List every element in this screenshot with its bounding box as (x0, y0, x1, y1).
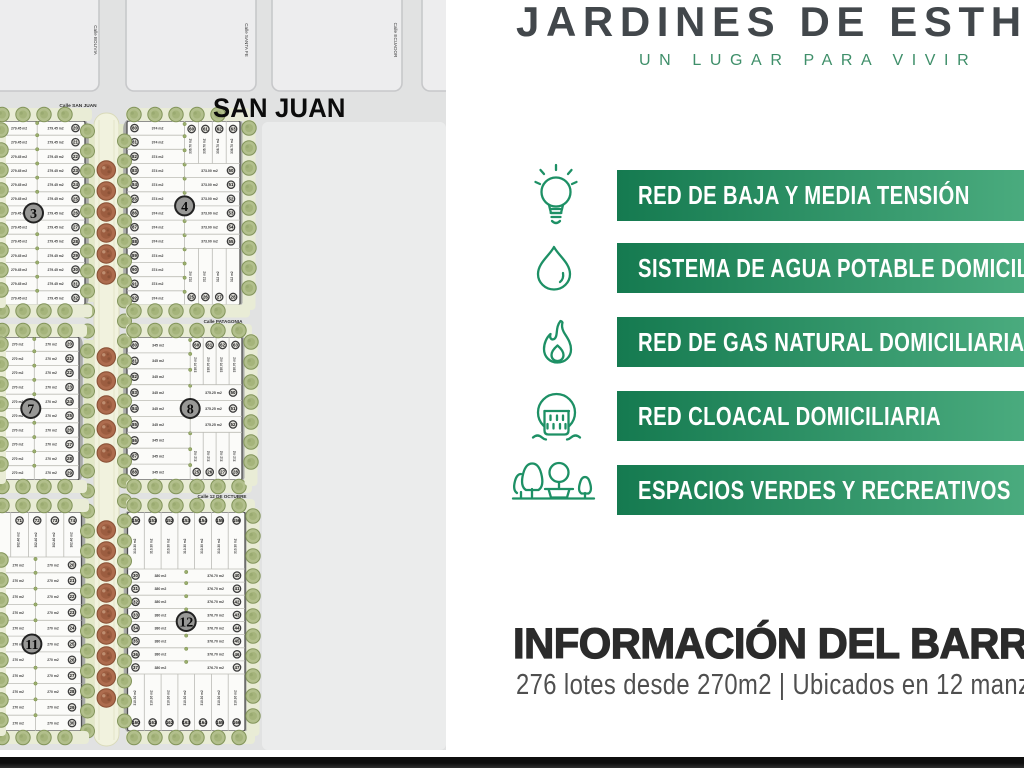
svg-text:21: 21 (73, 140, 78, 145)
svg-text:163: 163 (183, 720, 191, 725)
svg-text:270 m2: 270 m2 (45, 400, 57, 404)
svg-text:270 m2: 270 m2 (47, 579, 59, 583)
svg-text:81: 81 (132, 140, 137, 145)
svg-text:88: 88 (132, 470, 137, 475)
svg-text:373.00 m2: 373.00 m2 (201, 226, 218, 230)
svg-text:270 m2: 270 m2 (45, 371, 57, 375)
svg-text:376.70 m2: 376.70 m2 (207, 613, 224, 617)
svg-text:165: 165 (216, 720, 224, 725)
svg-text:270 m2: 270 m2 (45, 428, 57, 432)
svg-text:Calle 12 DE OCTUBRE: Calle 12 DE OCTUBRE (197, 494, 246, 499)
svg-text:376.70 m2: 376.70 m2 (207, 574, 224, 578)
svg-text:279.45 m2: 279.45 m2 (47, 254, 63, 258)
svg-text:279.45 m2: 279.45 m2 (11, 240, 27, 244)
svg-text:270 m2: 270 m2 (12, 343, 24, 347)
svg-text:27: 27 (73, 225, 78, 230)
svg-text:8: 8 (187, 403, 194, 418)
svg-text:60: 60 (194, 343, 199, 348)
svg-text:28: 28 (67, 456, 72, 461)
svg-text:270 m2: 270 m2 (47, 722, 59, 726)
svg-text:46: 46 (235, 652, 240, 657)
svg-text:92: 92 (132, 295, 137, 300)
svg-text:26: 26 (207, 470, 212, 475)
svg-text:279.45 m2: 279.45 m2 (47, 240, 63, 244)
svg-text:270 m2: 270 m2 (12, 471, 24, 475)
svg-text:270 m2: 270 m2 (12, 385, 24, 389)
svg-text:86: 86 (132, 438, 137, 443)
svg-text:26: 26 (67, 427, 72, 432)
svg-text:62: 62 (217, 127, 222, 132)
svg-text:22: 22 (70, 594, 75, 599)
svg-text:336.70 m2: 336.70 m2 (230, 138, 234, 153)
svg-text:312 m2: 312 m2 (202, 271, 206, 282)
svg-text:270 m2: 270 m2 (47, 563, 59, 567)
svg-text:376.70 m2: 376.70 m2 (207, 666, 224, 670)
svg-text:279.45 m2: 279.45 m2 (11, 127, 27, 131)
svg-text:53: 53 (229, 211, 234, 216)
svg-text:22: 22 (67, 370, 72, 375)
svg-text:310.30 m2: 310.30 m2 (133, 538, 137, 553)
svg-text:29: 29 (67, 470, 72, 475)
svg-text:270 m2: 270 m2 (12, 563, 24, 567)
svg-text:25: 25 (67, 413, 72, 418)
svg-text:154: 154 (199, 518, 207, 523)
svg-text:310.30 m2: 310.30 m2 (150, 690, 154, 705)
svg-text:270 m2: 270 m2 (45, 357, 57, 361)
svg-text:270 m2: 270 m2 (12, 443, 24, 447)
svg-text:279.45 m2: 279.45 m2 (47, 197, 63, 201)
svg-text:20: 20 (70, 562, 75, 567)
svg-text:270 m2: 270 m2 (47, 690, 59, 694)
svg-text:380 m2: 380 m2 (154, 574, 166, 578)
svg-text:270 m2: 270 m2 (45, 457, 57, 461)
svg-text:302.40 m2: 302.40 m2 (34, 532, 38, 547)
svg-text:270 m2: 270 m2 (47, 595, 59, 599)
svg-text:376.70 m2: 376.70 m2 (207, 587, 224, 591)
svg-text:373.00 m2: 373.00 m2 (201, 197, 218, 201)
svg-text:270 m2: 270 m2 (45, 414, 57, 418)
svg-text:47: 47 (235, 665, 240, 670)
svg-text:166: 166 (233, 720, 241, 725)
svg-text:52: 52 (229, 196, 234, 201)
svg-text:80: 80 (132, 126, 137, 131)
svg-text:153: 153 (183, 518, 191, 523)
svg-text:164: 164 (199, 720, 207, 725)
svg-text:41: 41 (235, 586, 240, 591)
svg-text:28: 28 (73, 239, 78, 244)
svg-text:376.70 m2: 376.70 m2 (207, 640, 224, 644)
svg-text:270 m2: 270 m2 (45, 471, 57, 475)
svg-text:279.45 m2: 279.45 m2 (47, 282, 63, 286)
svg-text:27: 27 (217, 295, 222, 300)
svg-text:279.45 m2: 279.45 m2 (47, 226, 63, 230)
svg-text:87: 87 (132, 454, 137, 459)
svg-text:279.45 m2: 279.45 m2 (47, 141, 63, 145)
svg-text:81: 81 (132, 358, 137, 363)
svg-text:373.00 m2: 373.00 m2 (201, 240, 218, 244)
svg-text:374 m2: 374 m2 (152, 155, 164, 159)
svg-text:26: 26 (203, 295, 208, 300)
svg-text:25: 25 (194, 470, 199, 475)
svg-text:279.45 m2: 279.45 m2 (11, 169, 27, 173)
svg-text:35: 35 (133, 639, 138, 644)
svg-text:373.00 m2: 373.00 m2 (201, 169, 218, 173)
svg-text:380 m2: 380 m2 (154, 627, 166, 631)
svg-text:312 m2: 312 m2 (230, 271, 234, 282)
svg-text:345 m2: 345 m2 (152, 455, 164, 459)
svg-text:312 m2: 312 m2 (220, 451, 224, 462)
svg-text:51: 51 (231, 406, 236, 411)
svg-text:310.30 m2: 310.30 m2 (217, 538, 221, 553)
svg-text:25: 25 (189, 295, 194, 300)
svg-text:89: 89 (132, 253, 137, 258)
svg-text:50: 50 (229, 168, 234, 173)
svg-text:270 m2: 270 m2 (12, 457, 24, 461)
svg-text:270 m2: 270 m2 (12, 400, 24, 404)
svg-text:373.00 m2: 373.00 m2 (201, 211, 218, 215)
svg-text:279.45 m2: 279.45 m2 (47, 183, 63, 187)
svg-text:50: 50 (231, 390, 236, 395)
svg-text:380 m2: 380 m2 (154, 640, 166, 644)
svg-text:375.25 m2: 375.25 m2 (205, 391, 222, 395)
svg-text:30: 30 (70, 721, 75, 726)
svg-text:279.45 m2: 279.45 m2 (11, 254, 27, 258)
svg-text:270 m2: 270 m2 (12, 371, 24, 375)
svg-text:302.40 m2: 302.40 m2 (70, 532, 74, 547)
svg-text:312 m2: 312 m2 (233, 451, 237, 462)
svg-text:380 m2: 380 m2 (154, 653, 166, 657)
svg-text:54: 54 (229, 225, 234, 230)
svg-text:28: 28 (231, 295, 236, 300)
svg-text:270 m2: 270 m2 (12, 627, 24, 631)
svg-text:270 m2: 270 m2 (47, 674, 59, 678)
svg-text:40: 40 (235, 573, 240, 578)
svg-text:345 m2: 345 m2 (152, 343, 164, 347)
svg-text:312 m2: 312 m2 (207, 451, 211, 462)
svg-text:11: 11 (25, 638, 38, 653)
svg-text:270 m2: 270 m2 (12, 706, 24, 710)
svg-text:336.70 m2: 336.70 m2 (194, 357, 198, 372)
svg-text:74: 74 (70, 518, 75, 523)
svg-text:345 m2: 345 m2 (152, 359, 164, 363)
svg-text:270 m2: 270 m2 (12, 658, 24, 662)
svg-text:44: 44 (235, 626, 240, 631)
svg-text:83: 83 (132, 168, 137, 173)
svg-text:28: 28 (70, 689, 75, 694)
svg-text:279.45 m2: 279.45 m2 (11, 183, 27, 187)
svg-text:87: 87 (132, 225, 137, 230)
svg-text:374 m2: 374 m2 (152, 226, 164, 230)
svg-text:25: 25 (73, 196, 78, 201)
svg-text:270 m2: 270 m2 (47, 658, 59, 662)
svg-text:25: 25 (70, 642, 75, 647)
svg-text:155: 155 (216, 518, 224, 523)
svg-text:279.45 m2: 279.45 m2 (47, 127, 63, 131)
svg-text:52: 52 (231, 422, 236, 427)
svg-text:23: 23 (67, 385, 72, 390)
svg-text:373.00 m2: 373.00 m2 (201, 183, 218, 187)
svg-text:150: 150 (132, 518, 140, 523)
svg-text:34: 34 (133, 626, 138, 631)
svg-text:310.30 m2: 310.30 m2 (217, 690, 221, 705)
svg-text:376.70 m2: 376.70 m2 (207, 653, 224, 657)
svg-text:375.25 m2: 375.25 m2 (205, 423, 222, 427)
svg-text:374 m2: 374 m2 (152, 296, 164, 300)
svg-text:162: 162 (166, 720, 174, 725)
svg-text:279.45 m2: 279.45 m2 (11, 296, 27, 300)
svg-text:86: 86 (132, 211, 137, 216)
svg-text:23: 23 (70, 610, 75, 615)
svg-text:279.45 m2: 279.45 m2 (11, 197, 27, 201)
svg-text:345 m2: 345 m2 (152, 391, 164, 395)
svg-text:42: 42 (235, 599, 240, 604)
svg-text:374 m2: 374 m2 (152, 127, 164, 131)
svg-text:161: 161 (149, 720, 157, 725)
svg-text:374 m2: 374 m2 (152, 183, 164, 187)
svg-text:63: 63 (231, 127, 236, 132)
svg-text:279.45 m2: 279.45 m2 (47, 169, 63, 173)
svg-text:270 m2: 270 m2 (12, 722, 24, 726)
svg-text:279.45 m2: 279.45 m2 (47, 211, 63, 215)
svg-text:374 m2: 374 m2 (152, 141, 164, 145)
svg-text:28: 28 (233, 470, 238, 475)
svg-text:88: 88 (132, 239, 137, 244)
svg-text:345 m2: 345 m2 (152, 375, 164, 379)
svg-text:336.70 m2: 336.70 m2 (207, 357, 211, 372)
svg-text:279.45 m2: 279.45 m2 (11, 268, 27, 272)
svg-text:27: 27 (220, 470, 225, 475)
svg-text:270 m2: 270 m2 (45, 385, 57, 389)
svg-text:26: 26 (73, 211, 78, 216)
svg-text:24: 24 (70, 626, 75, 631)
svg-text:Calle ECUADOR: Calle ECUADOR (393, 23, 398, 58)
svg-text:73: 73 (52, 518, 57, 523)
svg-text:33: 33 (133, 612, 138, 617)
svg-text:71: 71 (17, 518, 22, 523)
svg-text:85: 85 (132, 422, 137, 427)
svg-text:302.40 m2: 302.40 m2 (17, 532, 21, 547)
svg-text:84: 84 (132, 182, 137, 187)
svg-text:374 m2: 374 m2 (152, 254, 164, 258)
svg-text:270 m2: 270 m2 (47, 611, 59, 615)
svg-text:310.30 m2: 310.30 m2 (133, 690, 137, 705)
svg-text:63: 63 (233, 343, 238, 348)
svg-text:380 m2: 380 m2 (154, 613, 166, 617)
svg-text:279.45 m2: 279.45 m2 (11, 282, 27, 286)
svg-text:374 m2: 374 m2 (152, 240, 164, 244)
svg-text:312 m2: 312 m2 (194, 451, 198, 462)
svg-text:43: 43 (235, 612, 240, 617)
svg-text:152: 152 (166, 518, 174, 523)
svg-text:31: 31 (133, 586, 138, 591)
svg-text:312 m2: 312 m2 (189, 271, 193, 282)
svg-text:82: 82 (132, 374, 137, 379)
svg-text:310.30 m2: 310.30 m2 (167, 538, 171, 553)
svg-text:90: 90 (132, 267, 137, 272)
svg-text:22: 22 (73, 154, 78, 159)
svg-text:345 m2: 345 m2 (152, 423, 164, 427)
svg-text:24: 24 (67, 399, 72, 404)
svg-text:270 m2: 270 m2 (47, 642, 59, 646)
svg-text:302.40 m2: 302.40 m2 (52, 532, 56, 547)
svg-text:83: 83 (132, 390, 137, 395)
svg-text:374 m2: 374 m2 (152, 197, 164, 201)
svg-text:312 m2: 312 m2 (216, 271, 220, 282)
svg-text:80: 80 (132, 342, 137, 347)
svg-text:375.25 m2: 375.25 m2 (205, 407, 222, 411)
svg-text:336.70 m2: 336.70 m2 (189, 138, 193, 153)
svg-text:160: 160 (132, 720, 140, 725)
svg-text:279.45 m2: 279.45 m2 (11, 141, 27, 145)
svg-text:270 m2: 270 m2 (45, 443, 57, 447)
svg-text:336.70 m2: 336.70 m2 (216, 138, 220, 153)
svg-text:29: 29 (70, 705, 75, 710)
svg-text:62: 62 (220, 343, 225, 348)
svg-text:7: 7 (27, 403, 34, 418)
svg-text:270 m2: 270 m2 (12, 690, 24, 694)
svg-text:32: 32 (73, 295, 78, 300)
svg-text:84: 84 (132, 406, 137, 411)
svg-text:345 m2: 345 m2 (152, 407, 164, 411)
svg-text:72: 72 (35, 518, 40, 523)
svg-text:380 m2: 380 m2 (154, 666, 166, 670)
svg-text:61: 61 (207, 343, 212, 348)
svg-text:51: 51 (229, 182, 234, 187)
svg-text:82: 82 (132, 154, 137, 159)
svg-text:23: 23 (73, 168, 78, 173)
svg-text:270 m2: 270 m2 (45, 343, 57, 347)
svg-text:336.70 m2: 336.70 m2 (202, 138, 206, 153)
svg-text:270 m2: 270 m2 (12, 357, 24, 361)
svg-text:45: 45 (235, 639, 240, 644)
svg-text:376.70 m2: 376.70 m2 (207, 600, 224, 604)
svg-text:Calle PATAGONIA: Calle PATAGONIA (204, 319, 243, 324)
svg-text:29: 29 (73, 253, 78, 258)
svg-text:4: 4 (181, 200, 188, 215)
svg-text:20: 20 (73, 126, 78, 131)
svg-text:374 m2: 374 m2 (152, 211, 164, 215)
svg-text:36: 36 (133, 652, 138, 657)
svg-text:270 m2: 270 m2 (12, 595, 24, 599)
svg-text:27: 27 (70, 673, 75, 678)
svg-text:336.70 m2: 336.70 m2 (233, 357, 237, 372)
svg-text:279.45 m2: 279.45 m2 (11, 226, 27, 230)
svg-text:55: 55 (229, 239, 234, 244)
svg-text:31: 31 (73, 281, 78, 286)
svg-text:374 m2: 374 m2 (152, 282, 164, 286)
svg-text:21: 21 (70, 578, 75, 583)
svg-text:310.30 m2: 310.30 m2 (200, 538, 204, 553)
svg-text:91: 91 (132, 281, 137, 286)
svg-text:310.30 m2: 310.30 m2 (183, 538, 187, 553)
svg-text:374 m2: 374 m2 (152, 268, 164, 272)
svg-text:310.30 m2: 310.30 m2 (234, 538, 238, 553)
svg-text:336.70 m2: 336.70 m2 (220, 357, 224, 372)
svg-text:310.30 m2: 310.30 m2 (183, 690, 187, 705)
svg-text:279.45 m2: 279.45 m2 (47, 296, 63, 300)
svg-text:374 m2: 374 m2 (152, 169, 164, 173)
svg-text:345 m2: 345 m2 (152, 439, 164, 443)
svg-text:380 m2: 380 m2 (154, 587, 166, 591)
svg-text:345 m2: 345 m2 (152, 471, 164, 475)
svg-text:270 m2: 270 m2 (12, 674, 24, 678)
svg-text:85: 85 (132, 196, 137, 201)
svg-text:270 m2: 270 m2 (47, 627, 59, 631)
svg-text:Calle SANTA FE: Calle SANTA FE (244, 23, 249, 57)
svg-text:61: 61 (203, 127, 208, 132)
svg-text:270 m2: 270 m2 (12, 579, 24, 583)
svg-text:270 m2: 270 m2 (12, 428, 24, 432)
svg-text:12: 12 (179, 616, 193, 631)
svg-text:3: 3 (30, 207, 37, 222)
svg-text:310.30 m2: 310.30 m2 (234, 690, 238, 705)
svg-text:32: 32 (133, 599, 138, 604)
svg-text:26: 26 (70, 657, 75, 662)
svg-text:376.70 m2: 376.70 m2 (207, 627, 224, 631)
svg-text:20: 20 (67, 342, 72, 347)
svg-text:310.30 m2: 310.30 m2 (150, 538, 154, 553)
svg-text:37: 37 (133, 665, 138, 670)
svg-text:30: 30 (73, 267, 78, 272)
svg-text:279.45 m2: 279.45 m2 (11, 155, 27, 159)
svg-text:270 m2: 270 m2 (12, 414, 24, 418)
svg-text:Calle BOLIVIA: Calle BOLIVIA (93, 25, 98, 56)
svg-text:151: 151 (149, 518, 157, 523)
svg-text:60: 60 (189, 127, 194, 132)
svg-text:27: 27 (67, 442, 72, 447)
svg-text:270 m2: 270 m2 (47, 706, 59, 710)
svg-text:21: 21 (67, 356, 72, 361)
svg-text:24: 24 (73, 182, 78, 187)
svg-text:30: 30 (133, 573, 138, 578)
svg-text:310.30 m2: 310.30 m2 (167, 690, 171, 705)
svg-text:156: 156 (233, 518, 241, 523)
svg-text:270 m2: 270 m2 (12, 611, 24, 615)
svg-text:279.45 m2: 279.45 m2 (47, 268, 63, 272)
svg-text:279.45 m2: 279.45 m2 (47, 155, 63, 159)
svg-text:380 m2: 380 m2 (154, 600, 166, 604)
svg-text:310.30 m2: 310.30 m2 (200, 690, 204, 705)
